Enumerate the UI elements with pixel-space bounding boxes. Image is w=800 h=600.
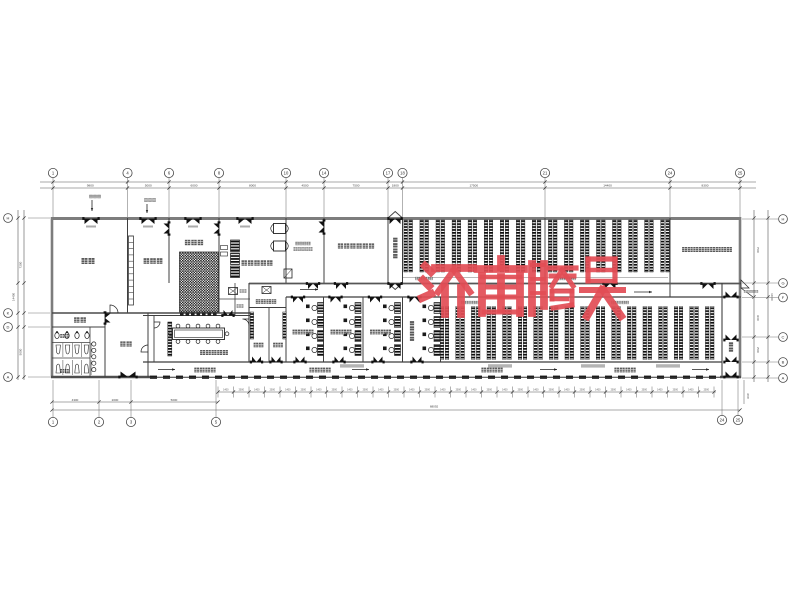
svg-text:7200: 7200: [19, 261, 23, 268]
svg-text:21: 21: [543, 171, 548, 176]
svg-text:2000: 2000: [518, 389, 524, 392]
svg-text:1400: 1400: [471, 389, 477, 392]
svg-text:18: 18: [400, 171, 405, 176]
svg-text:14400: 14400: [12, 292, 16, 301]
svg-text:1400: 1400: [347, 389, 353, 392]
svg-text:2000: 2000: [611, 389, 617, 392]
svg-text:25: 25: [736, 418, 741, 423]
svg-text:2000: 2000: [112, 398, 119, 402]
svg-text:2000: 2000: [673, 389, 679, 392]
svg-text:68092: 68092: [430, 405, 439, 409]
svg-text:24: 24: [720, 418, 725, 423]
svg-text:2000: 2000: [270, 389, 276, 392]
svg-text:16000: 16000: [770, 293, 774, 301]
svg-text:H: H: [782, 217, 785, 222]
svg-text:1400: 1400: [254, 389, 260, 392]
svg-text:1400: 1400: [688, 389, 694, 392]
svg-text:D: D: [7, 325, 10, 330]
svg-text:24: 24: [668, 171, 673, 176]
svg-text:1400: 1400: [533, 389, 539, 392]
svg-text:7500: 7500: [353, 184, 360, 188]
svg-text:2000: 2000: [487, 389, 493, 392]
svg-text:2000: 2000: [239, 389, 245, 392]
svg-text:1400: 1400: [502, 389, 508, 392]
svg-text:A: A: [782, 376, 785, 381]
svg-text:1400: 1400: [378, 389, 384, 392]
svg-text:8000: 8000: [249, 184, 256, 188]
svg-text:G: G: [781, 281, 784, 286]
svg-text:9800: 9800: [87, 184, 94, 188]
svg-text:H: H: [7, 216, 10, 221]
svg-text:C: C: [782, 335, 785, 340]
svg-text:4300: 4300: [72, 398, 79, 402]
svg-text:B: B: [782, 360, 785, 365]
svg-text:8300: 8300: [702, 184, 709, 188]
svg-text:2000: 2000: [425, 389, 431, 392]
svg-text:5000: 5000: [145, 184, 152, 188]
svg-text:7500: 7500: [756, 247, 760, 254]
svg-text:10: 10: [284, 171, 289, 176]
svg-text:1400: 1400: [223, 389, 229, 392]
svg-text:14400: 14400: [603, 184, 612, 188]
svg-text:2500: 2500: [756, 347, 760, 354]
svg-text:4500: 4500: [302, 184, 309, 188]
svg-text:5000: 5000: [171, 398, 178, 402]
svg-text:2000: 2000: [394, 389, 400, 392]
svg-text:1400: 1400: [316, 389, 322, 392]
svg-text:17500: 17500: [469, 184, 478, 188]
svg-text:2000: 2000: [642, 389, 648, 392]
svg-text:2000: 2000: [456, 389, 462, 392]
svg-text:1400: 1400: [409, 389, 415, 392]
svg-text:2000: 2000: [332, 389, 338, 392]
svg-text:1400: 1400: [626, 389, 632, 392]
svg-text:K: K: [7, 311, 10, 316]
svg-text:1400: 1400: [440, 389, 446, 392]
svg-text:14: 14: [322, 171, 327, 176]
svg-text:1400: 1400: [657, 389, 663, 392]
svg-text:4000: 4000: [756, 315, 760, 322]
svg-text:2000: 2000: [301, 389, 307, 392]
svg-text:1400: 1400: [595, 389, 601, 392]
svg-text:1400: 1400: [285, 389, 291, 392]
svg-text:2000: 2000: [580, 389, 586, 392]
svg-text:17: 17: [386, 171, 391, 176]
svg-text:6000: 6000: [191, 184, 198, 188]
svg-text:2000: 2000: [363, 389, 369, 392]
svg-text:2000: 2000: [704, 389, 710, 392]
svg-text:1400: 1400: [564, 389, 570, 392]
svg-text:1800: 1800: [392, 184, 399, 188]
svg-text:5000: 5000: [19, 348, 23, 355]
svg-text:2000: 2000: [549, 389, 555, 392]
svg-text:25: 25: [738, 171, 743, 176]
svg-text:3000: 3000: [746, 393, 750, 399]
svg-text:A: A: [7, 375, 10, 380]
